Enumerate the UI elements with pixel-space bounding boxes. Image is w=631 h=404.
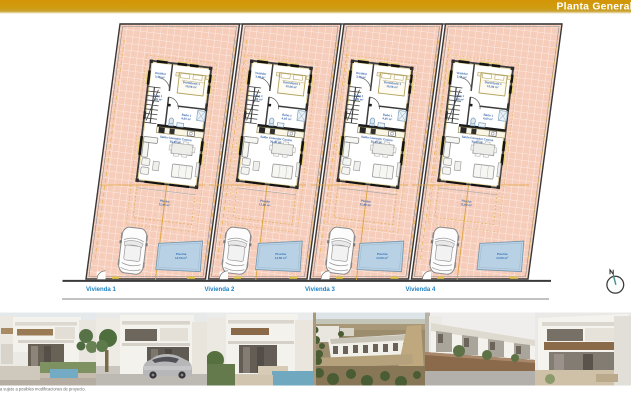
svg-text:Vivienda 2: Vivienda 2 xyxy=(205,287,235,293)
svg-text:a sujeto a posibles modificaci: a sujeto a posibles modificaciones de pr… xyxy=(0,387,86,392)
svg-text:Vivienda 1: Vivienda 1 xyxy=(86,287,116,293)
svg-text:Vivienda 3: Vivienda 3 xyxy=(305,287,335,293)
svg-text:Vivienda 4: Vivienda 4 xyxy=(406,287,436,293)
svg-text:Planta General: Planta General xyxy=(557,2,631,13)
